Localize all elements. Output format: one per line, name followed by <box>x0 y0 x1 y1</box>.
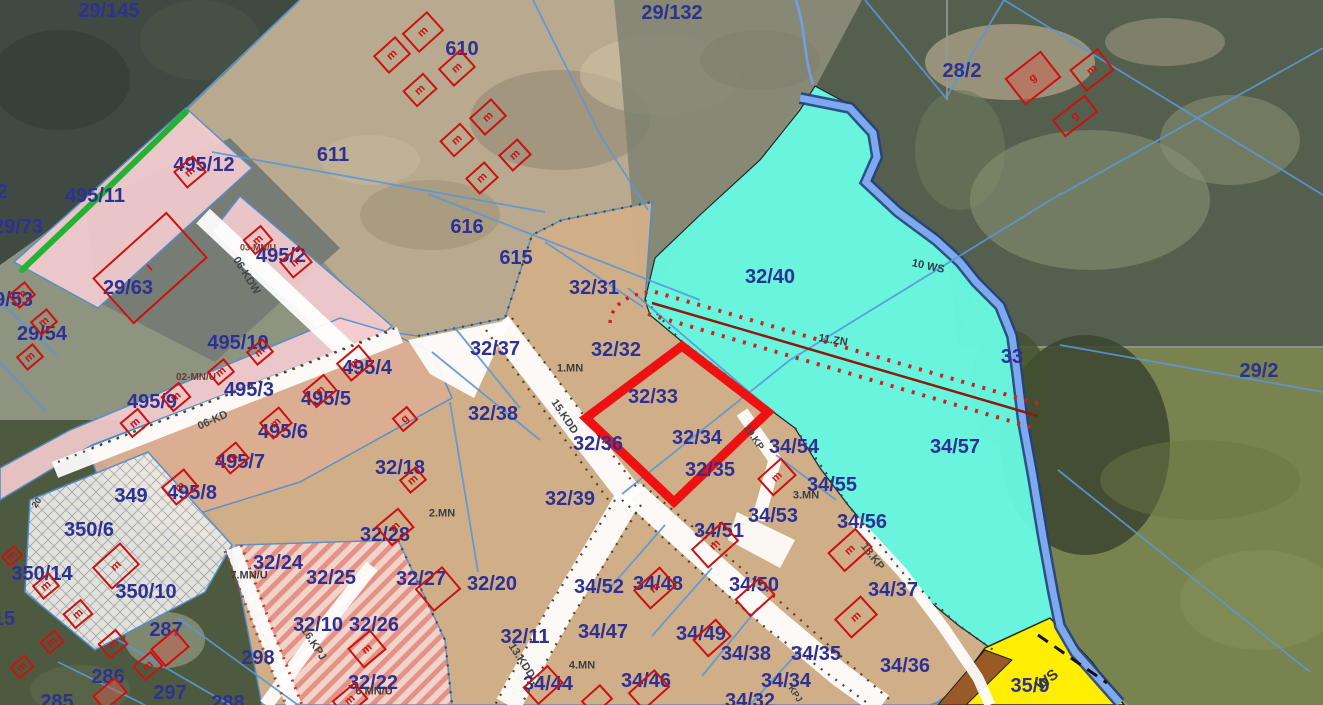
map-canvas[interactable]: 29/14529/13261061128/2495/12495/11229/73… <box>0 0 1323 705</box>
map-layers <box>0 0 1323 705</box>
